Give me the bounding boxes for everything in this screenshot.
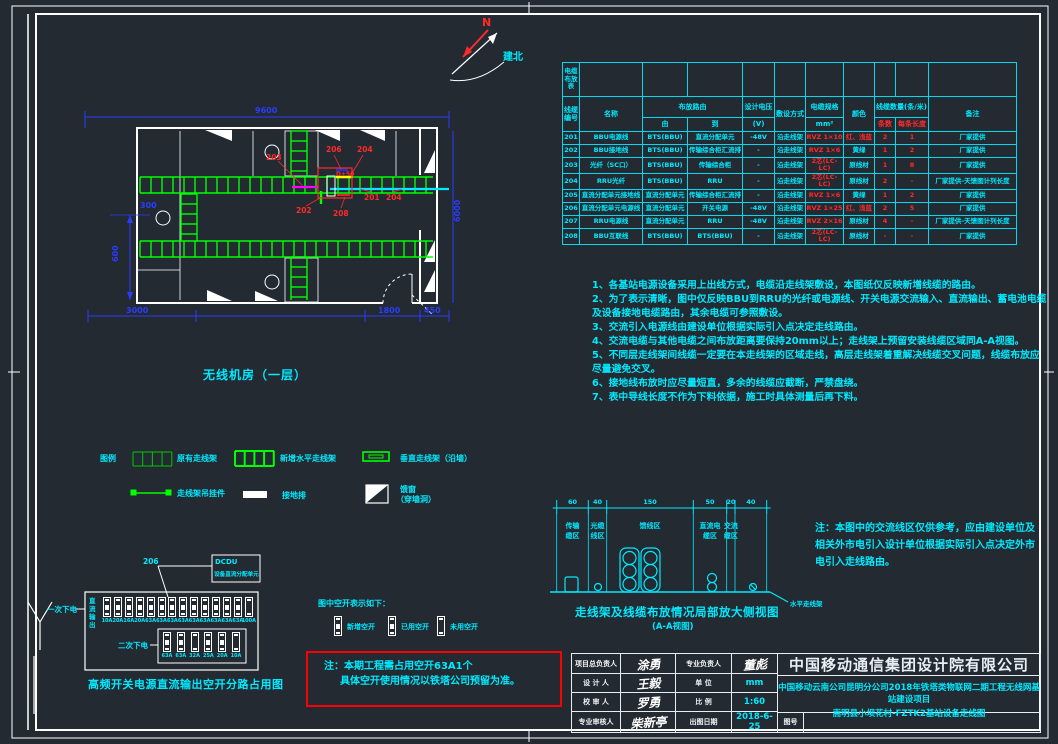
- table-cell: BTS(BBU): [643, 173, 688, 189]
- breaker-used: [223, 597, 231, 617]
- dcdu-line2: 设备直流分配单元: [214, 570, 259, 578]
- table-cell: 直流分配单元接地线: [580, 189, 643, 202]
- breaker-used: [218, 632, 226, 652]
- table-cell: [844, 63, 875, 97]
- table-cell: RVZ 1×6: [806, 145, 844, 158]
- table-cell: -48V: [743, 215, 775, 228]
- legend-symbols: [131, 451, 389, 503]
- table-cell: 电缆布放表: [563, 63, 580, 97]
- table-cell: 原线材: [844, 173, 875, 189]
- floor-plan: D+50 203 206 204 201 204 202: [85, 106, 462, 322]
- titleblock-label: 设 计 人: [572, 674, 621, 693]
- table-cell: RVZ 1×25: [806, 202, 844, 215]
- legend-feeder-window-icon: [366, 485, 388, 503]
- table-cell: 电缆规格: [806, 97, 844, 118]
- table-cell: [580, 63, 643, 97]
- table-cell: 直流分配单元: [688, 132, 743, 145]
- aa-zone-label: 线区: [591, 531, 605, 540]
- table-cell: 沿走线架: [775, 228, 806, 244]
- breaker-used: [125, 597, 133, 617]
- breaker-unused: [245, 597, 253, 617]
- table-cell: 2芯(LC-LC): [806, 228, 844, 244]
- panel-label-secondary: 二次下电: [118, 640, 148, 650]
- legend-hanger-label: 走线架吊挂件: [177, 488, 225, 499]
- table-cell: 每条长度: [896, 118, 929, 132]
- table-cell: -48V: [743, 132, 775, 145]
- table-cell: [806, 63, 844, 97]
- north-label: 建北: [502, 50, 523, 63]
- aa-dim-label: 40: [593, 498, 603, 506]
- table-cell: (V): [743, 118, 775, 132]
- titleblock-label: 出图日期: [676, 712, 732, 733]
- table-cell: [743, 63, 775, 97]
- walls: [137, 128, 437, 303]
- table-cell: 设计电压: [743, 97, 775, 118]
- breaker-label: 25A: [201, 653, 215, 659]
- table-cell: -48V: [743, 202, 775, 215]
- table-cell: -: [743, 158, 775, 174]
- note-line: 2、为了表示清晰，图中仅反映BBU到RRU的光纤或电源线、开关电源交流输入、直流…: [592, 293, 1047, 321]
- red-note-line1: 注：本期工程需占用空开63A1个: [324, 659, 560, 674]
- table-cell: 2芯(LC-LC): [806, 158, 844, 174]
- note-line: 1、各基站电源设备采用上出线方式，电缆沿走线架敷设，本图纸仅反映新增线缆的路由。: [592, 279, 1047, 293]
- note-line: 4、交流电缆与其他电缆之间布放距离要保持20mm以上；走线架上预留安装线缆区域同…: [592, 335, 1047, 349]
- aa-zone-label: 交流: [724, 521, 738, 530]
- columns: [156, 145, 279, 289]
- aa-view: 6040150502040传输缆区光缆线区馈线区直流电缆区交流缆区 水平走线架: [550, 498, 823, 608]
- titleblock-label: 专业负责人: [676, 654, 732, 674]
- table-cell: [896, 63, 929, 97]
- table-row: 206直流分配单元电源线直流分配单元开关电源-48V沿走线架RVZ 1×25红、…: [563, 202, 1017, 215]
- aa-zone-label: 传输: [565, 521, 581, 530]
- table-cell: 203: [563, 158, 580, 174]
- table-cell: BTS(BBU): [643, 145, 688, 158]
- table-cell: 2: [896, 189, 929, 202]
- aa-dim-label: 60: [568, 498, 578, 506]
- table-cell: 202: [563, 145, 580, 158]
- breaker-legend-label: 新增空开: [347, 622, 375, 632]
- aa-view-subtitle: (A-A视图): [652, 620, 693, 632]
- aa-dim-label: 150: [643, 498, 657, 506]
- red-note-line2: 具体空开使用情况以铁塔公司预留为准。: [340, 674, 560, 689]
- table-cell: 厂家提供: [929, 189, 1017, 202]
- table-cell: 原线材: [844, 215, 875, 228]
- table-cell: [875, 63, 896, 97]
- breaker-new: [158, 597, 166, 617]
- signature: 董彪: [731, 652, 778, 675]
- breaker-label: 10A: [229, 653, 243, 659]
- table-cell: -: [875, 228, 896, 244]
- north-arrow: N 建北: [450, 16, 523, 81]
- breaker-legend-label: 已用空开: [401, 622, 429, 632]
- legend-vertical-tray-icon: [363, 452, 389, 461]
- table-cell: 名称: [580, 97, 643, 132]
- wall-hatches: [205, 130, 435, 301]
- table-cell: 红、浅蓝: [844, 202, 875, 215]
- table-cell: -: [743, 228, 775, 244]
- table-cell: 2: [875, 132, 896, 145]
- signature: 柴新亭: [620, 710, 676, 735]
- svg-text:6000: 6000: [453, 199, 462, 222]
- table-cell: -: [743, 145, 775, 158]
- table-cell: -: [896, 173, 929, 189]
- table-cell: 沿走线架: [775, 145, 806, 158]
- table-cell: 直流分配单元: [643, 189, 688, 202]
- table-cell: 沿走线架: [775, 132, 806, 145]
- plan-dimensions: 9600 3000 1800 450 600 300 6000: [85, 106, 462, 322]
- breaker-used: [204, 632, 212, 652]
- dcdu-line1: DCDU: [215, 558, 238, 566]
- svg-text:600: 600: [111, 245, 120, 262]
- north-n-label: N: [482, 16, 491, 29]
- breaker-panel-title: 高频开关电源直流输出空开分路占用图: [88, 676, 284, 692]
- table-cell: 206: [563, 202, 580, 215]
- breaker-used: [179, 597, 187, 617]
- svg-text:出: 出: [89, 620, 96, 629]
- breaker-used: [190, 597, 198, 617]
- titleblock-label: 专业审核人: [572, 712, 621, 733]
- table-cell: 直流分配单元电源线: [580, 202, 643, 215]
- legend-feeder-window-label2: （穿墙洞）: [396, 494, 436, 505]
- table-cell: 204: [563, 173, 580, 189]
- table-cell: 线缆编号: [563, 97, 580, 132]
- panel-callout-no: 206: [143, 557, 159, 566]
- aa-cable-bundles: [565, 548, 757, 592]
- breaker-used: [103, 597, 111, 617]
- svg-text:3000: 3000: [126, 306, 149, 315]
- breaker-used: [177, 632, 185, 652]
- aa-zone-label: 缆区: [566, 531, 580, 540]
- table-cell: 由: [643, 118, 688, 132]
- table-cell: 208: [563, 228, 580, 244]
- breaker-used: [212, 597, 220, 617]
- titleblock-right-section: 中国移动通信集团设计院有限公司中国移动云南公司昆明分公司2018年铁塔类物联网二…: [778, 655, 1040, 732]
- table-cell: 5: [896, 202, 929, 215]
- svg-text:201: 201: [364, 193, 380, 202]
- titleblock-label: 校 审 人: [572, 693, 621, 712]
- table-row: 202BBU接地线BTS(BBU)传输综合柜汇流排-沿走线架RVZ 1×6黄绿1…: [563, 145, 1017, 158]
- svg-text:流: 流: [89, 604, 96, 613]
- table-cell: [688, 63, 743, 97]
- table-cell: 沿走线架: [775, 202, 806, 215]
- breaker-label: 32A: [188, 653, 202, 659]
- svg-text:300: 300: [140, 201, 157, 210]
- table-row: 204RRU光纤BTS(BBU)RRU-沿走线架2芯(LC-LC)原线材2-厂家…: [563, 173, 1017, 189]
- table-cell: BTS(BBU): [643, 228, 688, 244]
- table-cell: BBU电源线: [580, 132, 643, 145]
- table-cell: 备注: [929, 97, 1017, 132]
- table-cell: 光纤（SC口）: [580, 158, 643, 174]
- side-note: 注：本图中的交流线区仅供参考，应由建设单位及相关外市电引入设计单位根据实际引入点…: [815, 520, 1039, 571]
- table-cell: 厂家提供: [929, 132, 1017, 145]
- aa-view-title: 走线架及线缆布放情况局部放大侧视图: [575, 604, 779, 620]
- legend-vertical-tray-label: 垂直走线架（沿墙）: [400, 453, 472, 464]
- breaker-label: 63A: [174, 653, 188, 659]
- breaker-unused: [437, 616, 445, 636]
- svg-text:1800: 1800: [378, 306, 401, 315]
- table-cell: 2: [896, 145, 929, 158]
- titleblock-label: 单 位: [676, 674, 732, 693]
- breaker-used: [234, 597, 242, 617]
- titleblock-label: 比 例: [676, 693, 732, 712]
- legend-new-tray-label: 新增水平走线架: [280, 453, 336, 464]
- table-cell: RRU电源线: [580, 215, 643, 228]
- table-cell: BTS(BBU): [688, 228, 743, 244]
- aa-zone-label: 直流电: [700, 521, 721, 530]
- breaker-unused: [232, 632, 240, 652]
- table-cell: 沿走线架: [775, 173, 806, 189]
- table-cell: 布放路由: [643, 97, 743, 118]
- table-cell: 厂家提供: [929, 145, 1017, 158]
- aa-zone-label: 光缆: [590, 521, 605, 530]
- breaker-used: [201, 597, 209, 617]
- table-cell: BBU接地线: [580, 145, 643, 158]
- breaker-legend-label: 未用空开: [450, 622, 478, 632]
- table-cell: 厂家提供: [929, 158, 1017, 174]
- table-cell: 厂家提供: [929, 228, 1017, 244]
- aa-dim-label: 50: [705, 498, 715, 506]
- table-cell: BTS(BBU): [643, 132, 688, 145]
- table-cell: 传输综合柜汇流排: [688, 189, 743, 202]
- legend-existing-tray-label: 原有走线架: [177, 453, 217, 464]
- table-cell: 直流分配单元: [643, 202, 688, 215]
- table-cell: 红、浅蓝: [844, 132, 875, 145]
- ground-symbol: [28, 602, 52, 714]
- breaker-used: [114, 597, 122, 617]
- aa-zone-label: 缆区: [724, 531, 738, 540]
- table-cell: 207: [563, 215, 580, 228]
- table-cell: RVZ 2×16: [806, 215, 844, 228]
- table-cell: 原线材: [844, 228, 875, 244]
- table-cell: 厂家提供-天馈图计列长度: [929, 173, 1017, 189]
- aa-dim-label: 40: [746, 498, 756, 506]
- note-line: 6、接地线布放时应尽量短直，多余的线缆应截断，严禁盘绕。: [592, 377, 1047, 391]
- table-cell: 颜色: [844, 97, 875, 132]
- breaker-new: [334, 616, 342, 636]
- table-row: 203光纤（SC口）BTS(BBU)传输综合柜-沿走线架2芯(LC-LC)原线材…: [563, 158, 1017, 174]
- table-cell: BTS(BBU): [643, 158, 688, 174]
- table-cell: -: [896, 215, 929, 228]
- svg-text:输: 输: [89, 612, 96, 621]
- svg-text:9600: 9600: [255, 106, 278, 115]
- note-line: 3、交流引入电源线由建设单位根据实际引入点决定走线路由。: [592, 321, 1047, 335]
- title-block: 项目总负责人涂勇专业负责人董彪中国移动通信集团设计院有限公司中国移动云南公司昆明…: [571, 653, 1041, 733]
- table-row: 201BBU电源线BTS(BBU)直流分配单元-48V沿走线架RVZ 1×10红…: [563, 132, 1017, 145]
- breaker-label: 100A: [242, 618, 256, 624]
- table-cell: 沿走线架: [775, 158, 806, 174]
- table-cell: 1: [896, 132, 929, 145]
- table-cell: 1: [875, 158, 896, 174]
- table-cell: -: [896, 228, 929, 244]
- legend-hanger-icon: [131, 490, 171, 495]
- svg-text:直: 直: [89, 596, 96, 605]
- titleblock-value: mm: [732, 674, 778, 693]
- table-cell: -: [743, 189, 775, 202]
- table-cell: 厂家提供: [929, 202, 1017, 215]
- table-cell: RRU: [688, 215, 743, 228]
- breaker-used: [388, 616, 396, 636]
- legend-title: 图例: [100, 453, 116, 464]
- svg-text:204: 204: [357, 145, 373, 154]
- table-cell: 直流分配单元: [643, 215, 688, 228]
- table-cell: mm²: [806, 118, 844, 132]
- legend-groundbar-label: 接地排: [282, 490, 306, 501]
- table-row: 205直流分配单元接地线直流分配单元传输综合柜汇流排-沿走线架RVZ 1×6黄绿…: [563, 189, 1017, 202]
- table-cell: 黄绿: [844, 189, 875, 202]
- notes-list: 1、各基站电源设备采用上出线方式，电缆沿走线架敷设，本图纸仅反映新增线缆的路由。…: [592, 279, 1047, 405]
- table-cell: 2: [875, 202, 896, 215]
- aa-dim-label: 20: [726, 498, 736, 506]
- cable-table: 电缆布放表线缆编号名称布放路由设计电压敷设方式电缆规格颜色线缆数量(条/米)备注…: [562, 62, 1017, 245]
- legend-groundbar-icon: [243, 491, 267, 498]
- table-cell: 厂家提供-天馈图计列长度: [929, 215, 1017, 228]
- titleblock-label: 项目总负责人: [572, 654, 621, 674]
- table-cell: 开关电源: [688, 202, 743, 215]
- table-cell: 2: [875, 173, 896, 189]
- table-row: 207RRU电源线直流分配单元RRU-48V沿走线架RVZ 2×16原线材4-厂…: [563, 215, 1017, 228]
- table-cell: 原线材: [844, 158, 875, 174]
- breaker-used: [147, 597, 155, 617]
- table-cell: 传输综合柜汇流排: [688, 145, 743, 158]
- table-cell: -: [743, 173, 775, 189]
- table-cell: RVZ 1×6: [806, 189, 844, 202]
- table-row: 208BBU互联线BTS(BBU)BTS(BBU)-沿走线架2芯(LC-LC)原…: [563, 228, 1017, 244]
- table-cell: 敷设方式: [775, 97, 806, 132]
- breaker-unused: [191, 632, 199, 652]
- figure-number-label: 图号: [778, 713, 804, 732]
- breaker-legend-title: 图中空开表示如下：: [318, 598, 390, 609]
- note-line: 5、不同层走线架间线缆一定要在本走线架的区域走线，高层走线架着重解决线缆交叉问题…: [592, 349, 1047, 377]
- cable-trays: [140, 131, 433, 300]
- table-cell: 线缆数量(条/米): [875, 97, 929, 118]
- titleblock-value: 1:60: [732, 693, 778, 712]
- table-cell: [929, 63, 1017, 97]
- red-note-box: 注：本期工程需占用空开63A1个 具体空开使用情况以铁塔公司预留为准。: [306, 651, 562, 707]
- breaker-label: 63A: [160, 653, 174, 659]
- table-cell: 205: [563, 189, 580, 202]
- table-cell: 4: [875, 215, 896, 228]
- table-cell: 201: [563, 132, 580, 145]
- table-cell: 8: [896, 158, 929, 174]
- table-cell: 到: [688, 118, 743, 132]
- table-cell: 传输综合柜: [688, 158, 743, 174]
- breaker-used: [163, 632, 171, 652]
- breaker-label: 20A: [215, 653, 229, 659]
- table-cell: [775, 63, 806, 97]
- breaker-used: [136, 597, 144, 617]
- table-cell: 1: [875, 189, 896, 202]
- table-cell: 沿走线架: [775, 215, 806, 228]
- aa-tray-label: 水平走线架: [790, 599, 823, 608]
- table-cell: BBU互联线: [580, 228, 643, 244]
- svg-text:202: 202: [296, 206, 312, 215]
- table-cell: 黄绿: [844, 145, 875, 158]
- svg-text:208: 208: [333, 209, 349, 218]
- drawing-sheet: N 建北: [0, 0, 1058, 744]
- table-cell: RRU光纤: [580, 173, 643, 189]
- svg-text:450: 450: [424, 306, 441, 315]
- breaker-used: [168, 597, 176, 617]
- company-name: 中国移动通信集团设计院有限公司: [778, 655, 1040, 676]
- project-title: 中国移动云南公司昆明分公司2018年铁塔类物联网二期工程无线网基站建设项目嵩明县…: [778, 676, 1040, 713]
- table-cell: 2芯(LC-LC): [806, 173, 844, 189]
- table-cell: 条数: [875, 118, 896, 132]
- panel-label-primary: 一次下电: [47, 604, 77, 614]
- titleblock-value: 2018-6-25: [732, 712, 778, 733]
- table-cell: RVZ 1×10: [806, 132, 844, 145]
- aa-zone-label: 馈线区: [640, 521, 661, 530]
- note-line: 7、表中导线长度不作为下料依据，施工时具体测量后再下料。: [592, 391, 1047, 405]
- svg-text:203: 203: [266, 153, 282, 162]
- svg-text:206: 206: [326, 145, 342, 154]
- svg-text:204: 204: [386, 193, 402, 202]
- table-cell: RRU: [688, 173, 743, 189]
- table-cell: 1: [875, 145, 896, 158]
- table-cell: 沿走线架: [775, 189, 806, 202]
- table-cell: [643, 63, 688, 97]
- floor-plan-title: 无线机房（一层）: [203, 366, 307, 383]
- aa-zone-label: 缆区: [703, 531, 717, 540]
